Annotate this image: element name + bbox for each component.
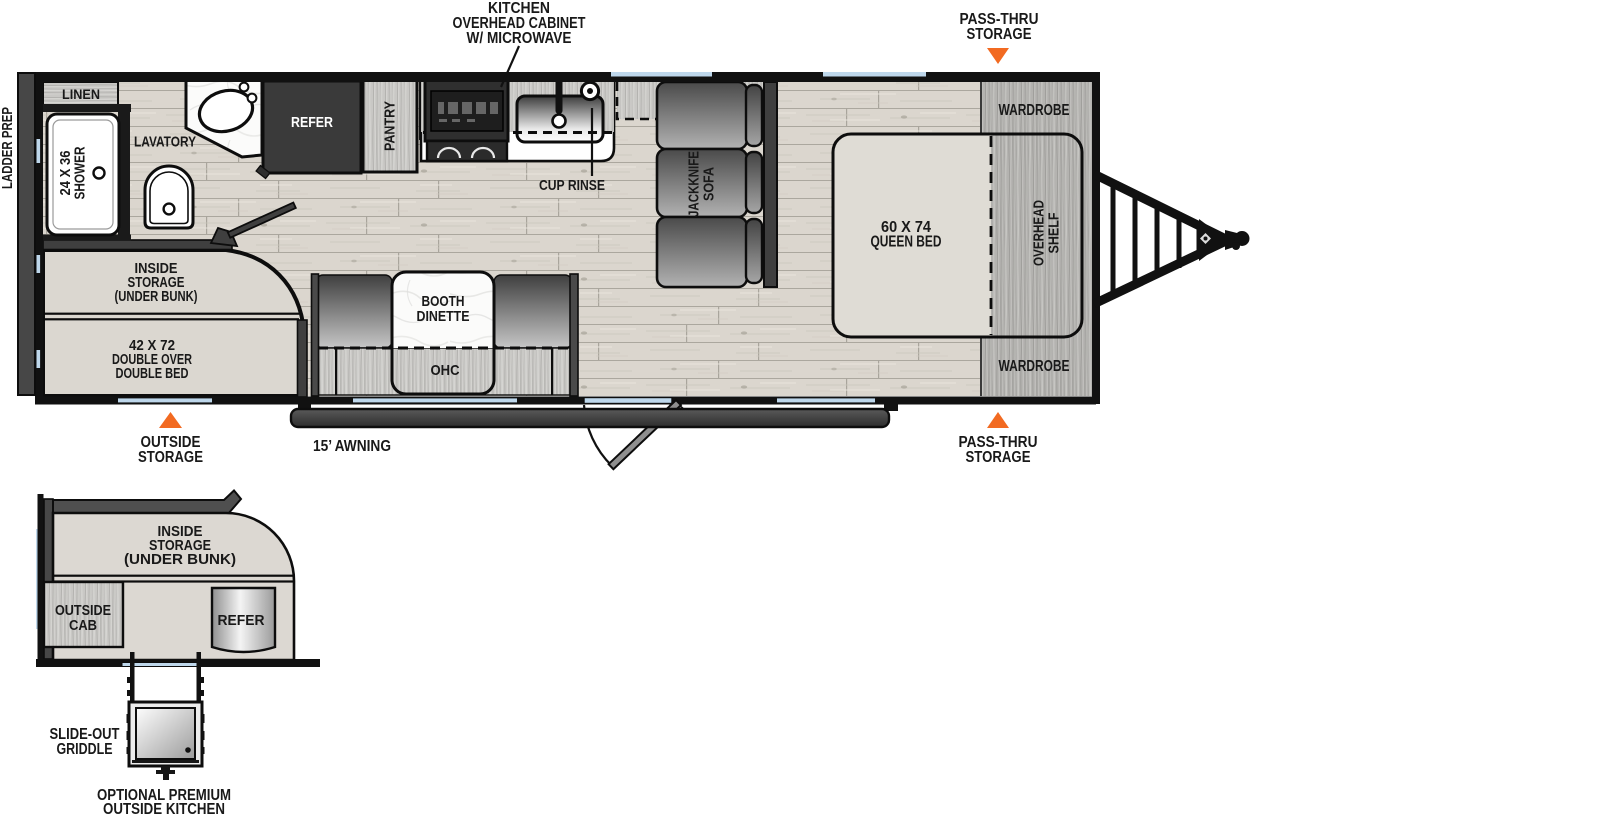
svg-text:STORAGE: STORAGE — [967, 26, 1032, 43]
svg-text:OUTSIDE KITCHEN: OUTSIDE KITCHEN — [103, 801, 225, 815]
svg-text:QUEEN BED: QUEEN BED — [871, 234, 942, 251]
svg-text:REFER: REFER — [291, 114, 333, 131]
svg-text:STORAGE: STORAGE — [138, 449, 203, 466]
svg-text:(UNDER BUNK): (UNDER BUNK) — [115, 289, 198, 305]
svg-text:REFER: REFER — [218, 612, 265, 629]
svg-text:15’ AWNING: 15’ AWNING — [313, 438, 391, 455]
svg-text:SOFA: SOFA — [701, 167, 718, 201]
svg-text:DOUBLE BED: DOUBLE BED — [116, 366, 189, 382]
svg-text:OUTSIDE: OUTSIDE — [55, 603, 111, 619]
svg-text:(UNDER BUNK): (UNDER BUNK) — [124, 551, 236, 568]
svg-text:OHC: OHC — [431, 362, 460, 379]
svg-text:SHELF: SHELF — [1046, 213, 1063, 254]
svg-text:LADDER PREP: LADDER PREP — [0, 107, 16, 189]
svg-text:LINEN: LINEN — [62, 86, 100, 102]
svg-text:DINETTE: DINETTE — [417, 308, 470, 325]
svg-text:W/ MICROWAVE: W/ MICROWAVE — [467, 30, 572, 47]
svg-text:CAB: CAB — [69, 618, 97, 634]
svg-text:CUP RINSE: CUP RINSE — [539, 177, 605, 194]
svg-text:STORAGE: STORAGE — [966, 449, 1031, 466]
svg-text:LAVATORY: LAVATORY — [134, 134, 196, 151]
svg-text:WARDROBE: WARDROBE — [999, 102, 1070, 119]
svg-text:PANTRY: PANTRY — [382, 101, 399, 151]
svg-text:SHOWER: SHOWER — [73, 146, 89, 199]
svg-text:GRIDDLE: GRIDDLE — [57, 741, 113, 758]
svg-text:WARDROBE: WARDROBE — [999, 358, 1070, 375]
